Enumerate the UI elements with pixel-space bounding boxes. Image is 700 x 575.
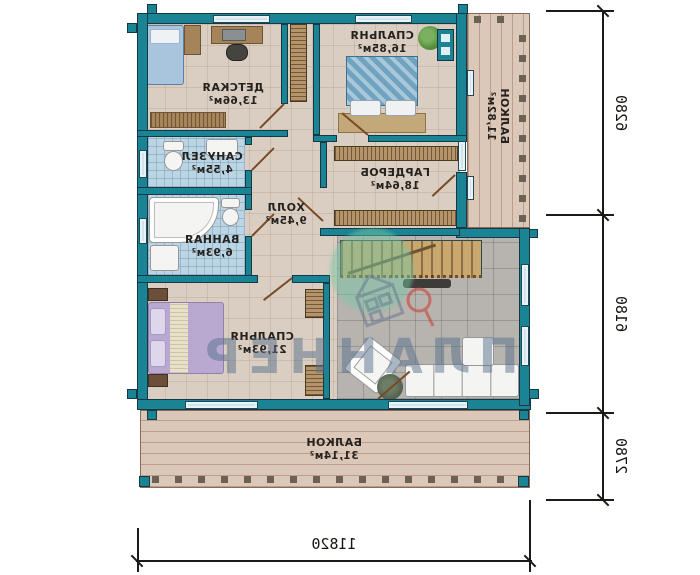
- nightstand: [184, 25, 201, 55]
- wall-post: [147, 4, 157, 14]
- room-area: 4,55м²: [181, 164, 243, 178]
- dimension-line-bottom: [136, 560, 532, 562]
- room-name: БАЛКОН: [306, 436, 362, 450]
- balcony-post: [139, 476, 150, 487]
- window: [185, 401, 258, 409]
- window: [139, 150, 147, 178]
- balcony-door: [458, 141, 466, 171]
- bed-runner: [170, 303, 188, 373]
- dresser-drawer: [441, 34, 450, 42]
- dresser-drawer: [441, 47, 450, 55]
- window: [139, 218, 147, 244]
- wall-segment: [313, 135, 337, 142]
- pillow: [150, 340, 166, 367]
- wall-segment: [456, 172, 467, 228]
- room-name: БАЛКОН: [497, 88, 511, 144]
- room-area: 11,82м²: [483, 88, 497, 144]
- pillow: [350, 100, 381, 116]
- room-name: СПАЛЬНЯ: [350, 29, 414, 43]
- dimension-extension: [137, 528, 139, 572]
- wall-post: [529, 229, 538, 238]
- floor-plan-canvas: ПЛАННЕР ДЕТСКАЯ 13,66м² СПАЛЬНЯ 16,85м² …: [0, 0, 700, 575]
- wall-segment: [368, 135, 467, 142]
- wall-post: [147, 410, 157, 420]
- window: [355, 15, 412, 23]
- dimension-line-right: [602, 11, 604, 500]
- window: [213, 15, 270, 23]
- wall-post: [127, 23, 137, 33]
- toilet-bowl: [222, 208, 239, 226]
- clothes-rack: [334, 210, 458, 226]
- wall-segment: [137, 275, 258, 283]
- pillow: [150, 308, 166, 335]
- balcony-flower-box: [467, 176, 474, 200]
- clothes-rack: [334, 146, 458, 161]
- room-label-hall: ХОЛЛ 9,45м²: [265, 201, 307, 229]
- wall-post: [519, 410, 529, 420]
- room-label-balcony-bottom: БАЛКОН 31,14м²: [306, 436, 362, 464]
- balcony-post: [518, 476, 529, 487]
- window: [521, 326, 529, 366]
- nightstand: [148, 374, 168, 387]
- shower-tray: [150, 245, 179, 271]
- balcony-right-balusters: [519, 26, 526, 222]
- wall-post: [458, 4, 468, 14]
- wall-segment: [245, 137, 252, 145]
- wall-segment: [137, 13, 148, 410]
- room-name: ВАННАЯ: [185, 233, 240, 247]
- wall-segment: [456, 13, 467, 139]
- wall-segment: [137, 130, 288, 137]
- toilet-bowl: [164, 151, 183, 171]
- balcony-right-balusters-top: [474, 16, 518, 23]
- room-area: 31,14м²: [306, 450, 362, 464]
- room-label-wc: САНУЗЕЛ 4,55м²: [181, 150, 243, 178]
- room-label-children: ДЕТСКАЯ 13,66м²: [202, 81, 264, 109]
- room-name: ГАРДЕРОБ: [360, 166, 430, 180]
- balcony-bottom-balusters: [152, 476, 514, 483]
- wall-segment: [292, 275, 330, 283]
- house-icon: [351, 270, 402, 326]
- room-area: 9,45м²: [265, 215, 307, 229]
- dimension-value-right-middle: 6180: [612, 296, 630, 332]
- wall-post: [529, 389, 539, 399]
- dimension-value-bottom: 11820: [311, 535, 356, 553]
- room-area: 6,93м²: [185, 247, 240, 261]
- room-area: 13,66м²: [202, 95, 264, 109]
- nightstand: [148, 288, 168, 301]
- hall-wardrobe-rack: [290, 24, 307, 102]
- room-name: САНУЗЕЛ: [181, 150, 243, 164]
- dresser: [150, 112, 226, 128]
- wall-segment: [519, 228, 530, 406]
- watermark-text: ПЛАННЕР: [197, 329, 519, 385]
- room-area: 18,64м²: [360, 180, 430, 194]
- location-pin-icon: [408, 289, 433, 326]
- wall-segment: [281, 24, 288, 104]
- room-name: ХОЛЛ: [265, 201, 307, 215]
- toilet-tank: [221, 198, 240, 208]
- wall-segment: [313, 24, 320, 135]
- balcony-flower-box: [467, 70, 474, 96]
- wardrobe: [305, 289, 325, 318]
- room-area: 16,85м²: [350, 43, 414, 57]
- wall-segment: [137, 13, 467, 24]
- window: [388, 401, 468, 409]
- laptop: [222, 29, 246, 41]
- bed-blanket: [346, 56, 418, 106]
- room-label-bedroom-1: СПАЛЬНЯ 16,85м²: [350, 29, 414, 57]
- wall-post: [127, 389, 137, 399]
- desk-chair: [226, 44, 248, 61]
- wall-segment: [320, 142, 327, 188]
- wall-segment: [137, 187, 252, 195]
- pillow: [150, 29, 180, 44]
- dimension-value-right-top: 6280: [612, 95, 630, 131]
- room-label-balcony-right: БАЛКОН 11,82м²: [483, 88, 511, 144]
- room-name: ДЕТСКАЯ: [202, 81, 264, 95]
- dimension-value-right-bottom: 2780: [612, 438, 630, 474]
- room-label-bathroom: ВАННАЯ 6,93м²: [185, 233, 240, 261]
- pillow: [385, 100, 416, 116]
- room-label-wardrobe: ГАРДЕРОБ 18,64м²: [360, 166, 430, 194]
- window: [521, 264, 529, 306]
